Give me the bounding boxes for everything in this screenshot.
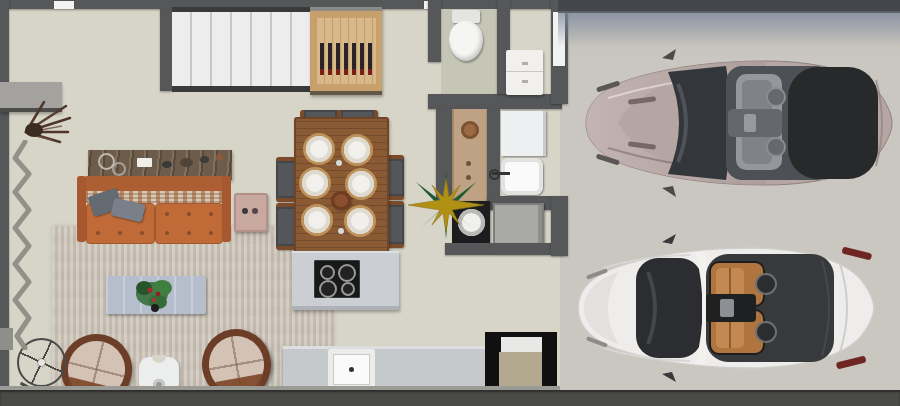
mirror-bottom — [662, 372, 676, 382]
vanity-handle-1 — [522, 62, 528, 65]
burner-3 — [319, 280, 337, 298]
wine-cabinet-shadow — [310, 91, 382, 95]
laundry-cabinet — [501, 111, 546, 156]
wine-cabinet — [310, 7, 382, 95]
headrest-left — [756, 274, 776, 294]
laundry-faucet-handle — [489, 169, 500, 180]
laundry-wall-left — [487, 109, 500, 208]
cooktop — [314, 260, 360, 298]
console-glass-2 — [112, 162, 126, 176]
dinner-plate-2 — [344, 137, 370, 163]
driveway-edge — [0, 390, 900, 406]
convertible-champagne — [578, 46, 896, 200]
headrest-right — [767, 138, 785, 156]
sofa-cushion-right — [155, 203, 223, 244]
front-door-frame — [54, 1, 74, 9]
tonneau-cover — [788, 67, 878, 179]
side-table-decor-2 — [252, 208, 258, 214]
dinner-plate-4 — [348, 171, 374, 197]
cabinet-knob-1 — [466, 161, 471, 166]
garage-door-shadow — [558, 13, 900, 47]
side-table — [234, 193, 268, 232]
table-glass-1 — [336, 160, 342, 166]
side-table-decor-1 — [242, 208, 248, 214]
wine-bottle-caps — [320, 69, 374, 75]
vanity-divider — [506, 71, 543, 72]
staircase — [172, 12, 312, 86]
compass-star-ornament — [406, 170, 486, 240]
windshield-glass — [636, 258, 702, 358]
sink-drain — [349, 367, 354, 372]
round-decor-plate — [461, 121, 479, 139]
garage-door — [558, 0, 900, 13]
accent-table-notch — [152, 355, 166, 363]
floor-plan-render — [0, 0, 900, 406]
divider-wall-lower — [551, 196, 568, 256]
dinner-plate-3 — [302, 170, 328, 196]
dinner-plate-1 — [306, 136, 332, 162]
laundry-sink — [501, 158, 543, 195]
sofa-back — [84, 176, 224, 192]
mirror-top — [662, 49, 676, 60]
bathroom-wall-left — [428, 0, 441, 62]
console-bowl-3 — [200, 156, 209, 163]
dried-branch — [16, 98, 72, 146]
vanity-handle-2 — [522, 80, 528, 83]
console-bowl-2 — [180, 158, 193, 167]
zigzag-decor — [9, 140, 35, 350]
convertible-white — [570, 232, 882, 384]
taillight-bottom — [836, 355, 867, 369]
service-wall-bottom — [445, 243, 563, 255]
headrest-left — [767, 88, 785, 106]
dinner-plate-5 — [304, 207, 330, 233]
console-knob — [216, 154, 223, 161]
mirror-bottom — [662, 186, 676, 197]
taillight-top — [841, 246, 872, 260]
headrest-right — [756, 322, 776, 342]
pantry-cabinet — [485, 332, 557, 392]
kitchen-sink — [328, 349, 375, 390]
stair-rail-bottom — [172, 86, 312, 92]
bathroom-wall-bottom — [428, 94, 562, 109]
dinner-plate-6 — [347, 208, 373, 234]
star-gold — [408, 178, 484, 232]
centerpiece — [331, 191, 351, 210]
console-bowl-1 — [162, 161, 172, 168]
burner-2 — [338, 264, 356, 282]
sofa-armrest-right — [222, 176, 231, 242]
console-white-decor — [137, 158, 152, 167]
coffee-table-plant — [128, 272, 184, 316]
burner-1 — [320, 265, 335, 280]
sofa-armrest-left — [77, 176, 86, 242]
table-glass-2 — [338, 228, 344, 234]
vanity-cabinet — [506, 50, 543, 95]
burner-4 — [341, 282, 355, 296]
pantry-shelf — [501, 337, 542, 352]
mirror-top — [662, 234, 676, 244]
